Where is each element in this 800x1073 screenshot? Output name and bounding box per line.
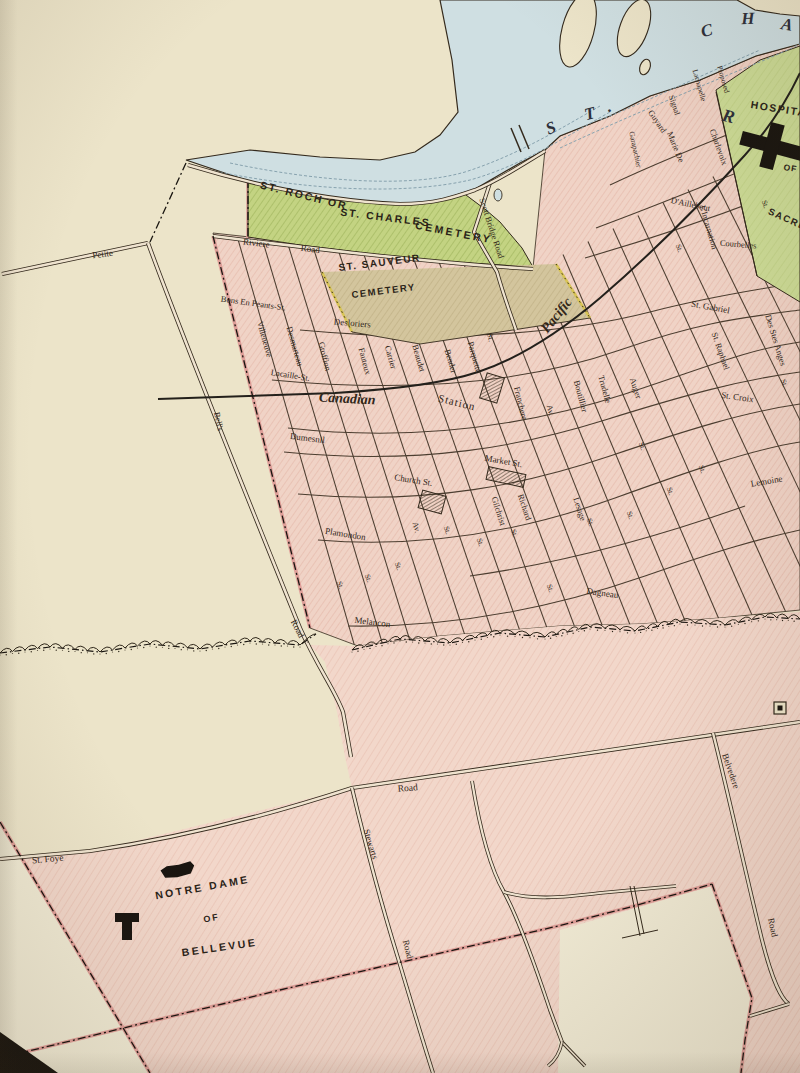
area-label: OF [783,162,798,174]
map-page: ST.CHARST. ROCH ORST. CHARLESCEMETERYST.… [0,0,800,1073]
map-canvas: ST.CHARST. ROCH ORST. CHARLESCEMETERYST.… [0,0,800,1073]
street-label: Canadian [318,390,376,408]
river-letter: . [608,97,612,116]
flag-marker [774,702,786,714]
street-label: Road [397,782,418,794]
river-letter: H [740,9,756,29]
pond [494,189,502,201]
